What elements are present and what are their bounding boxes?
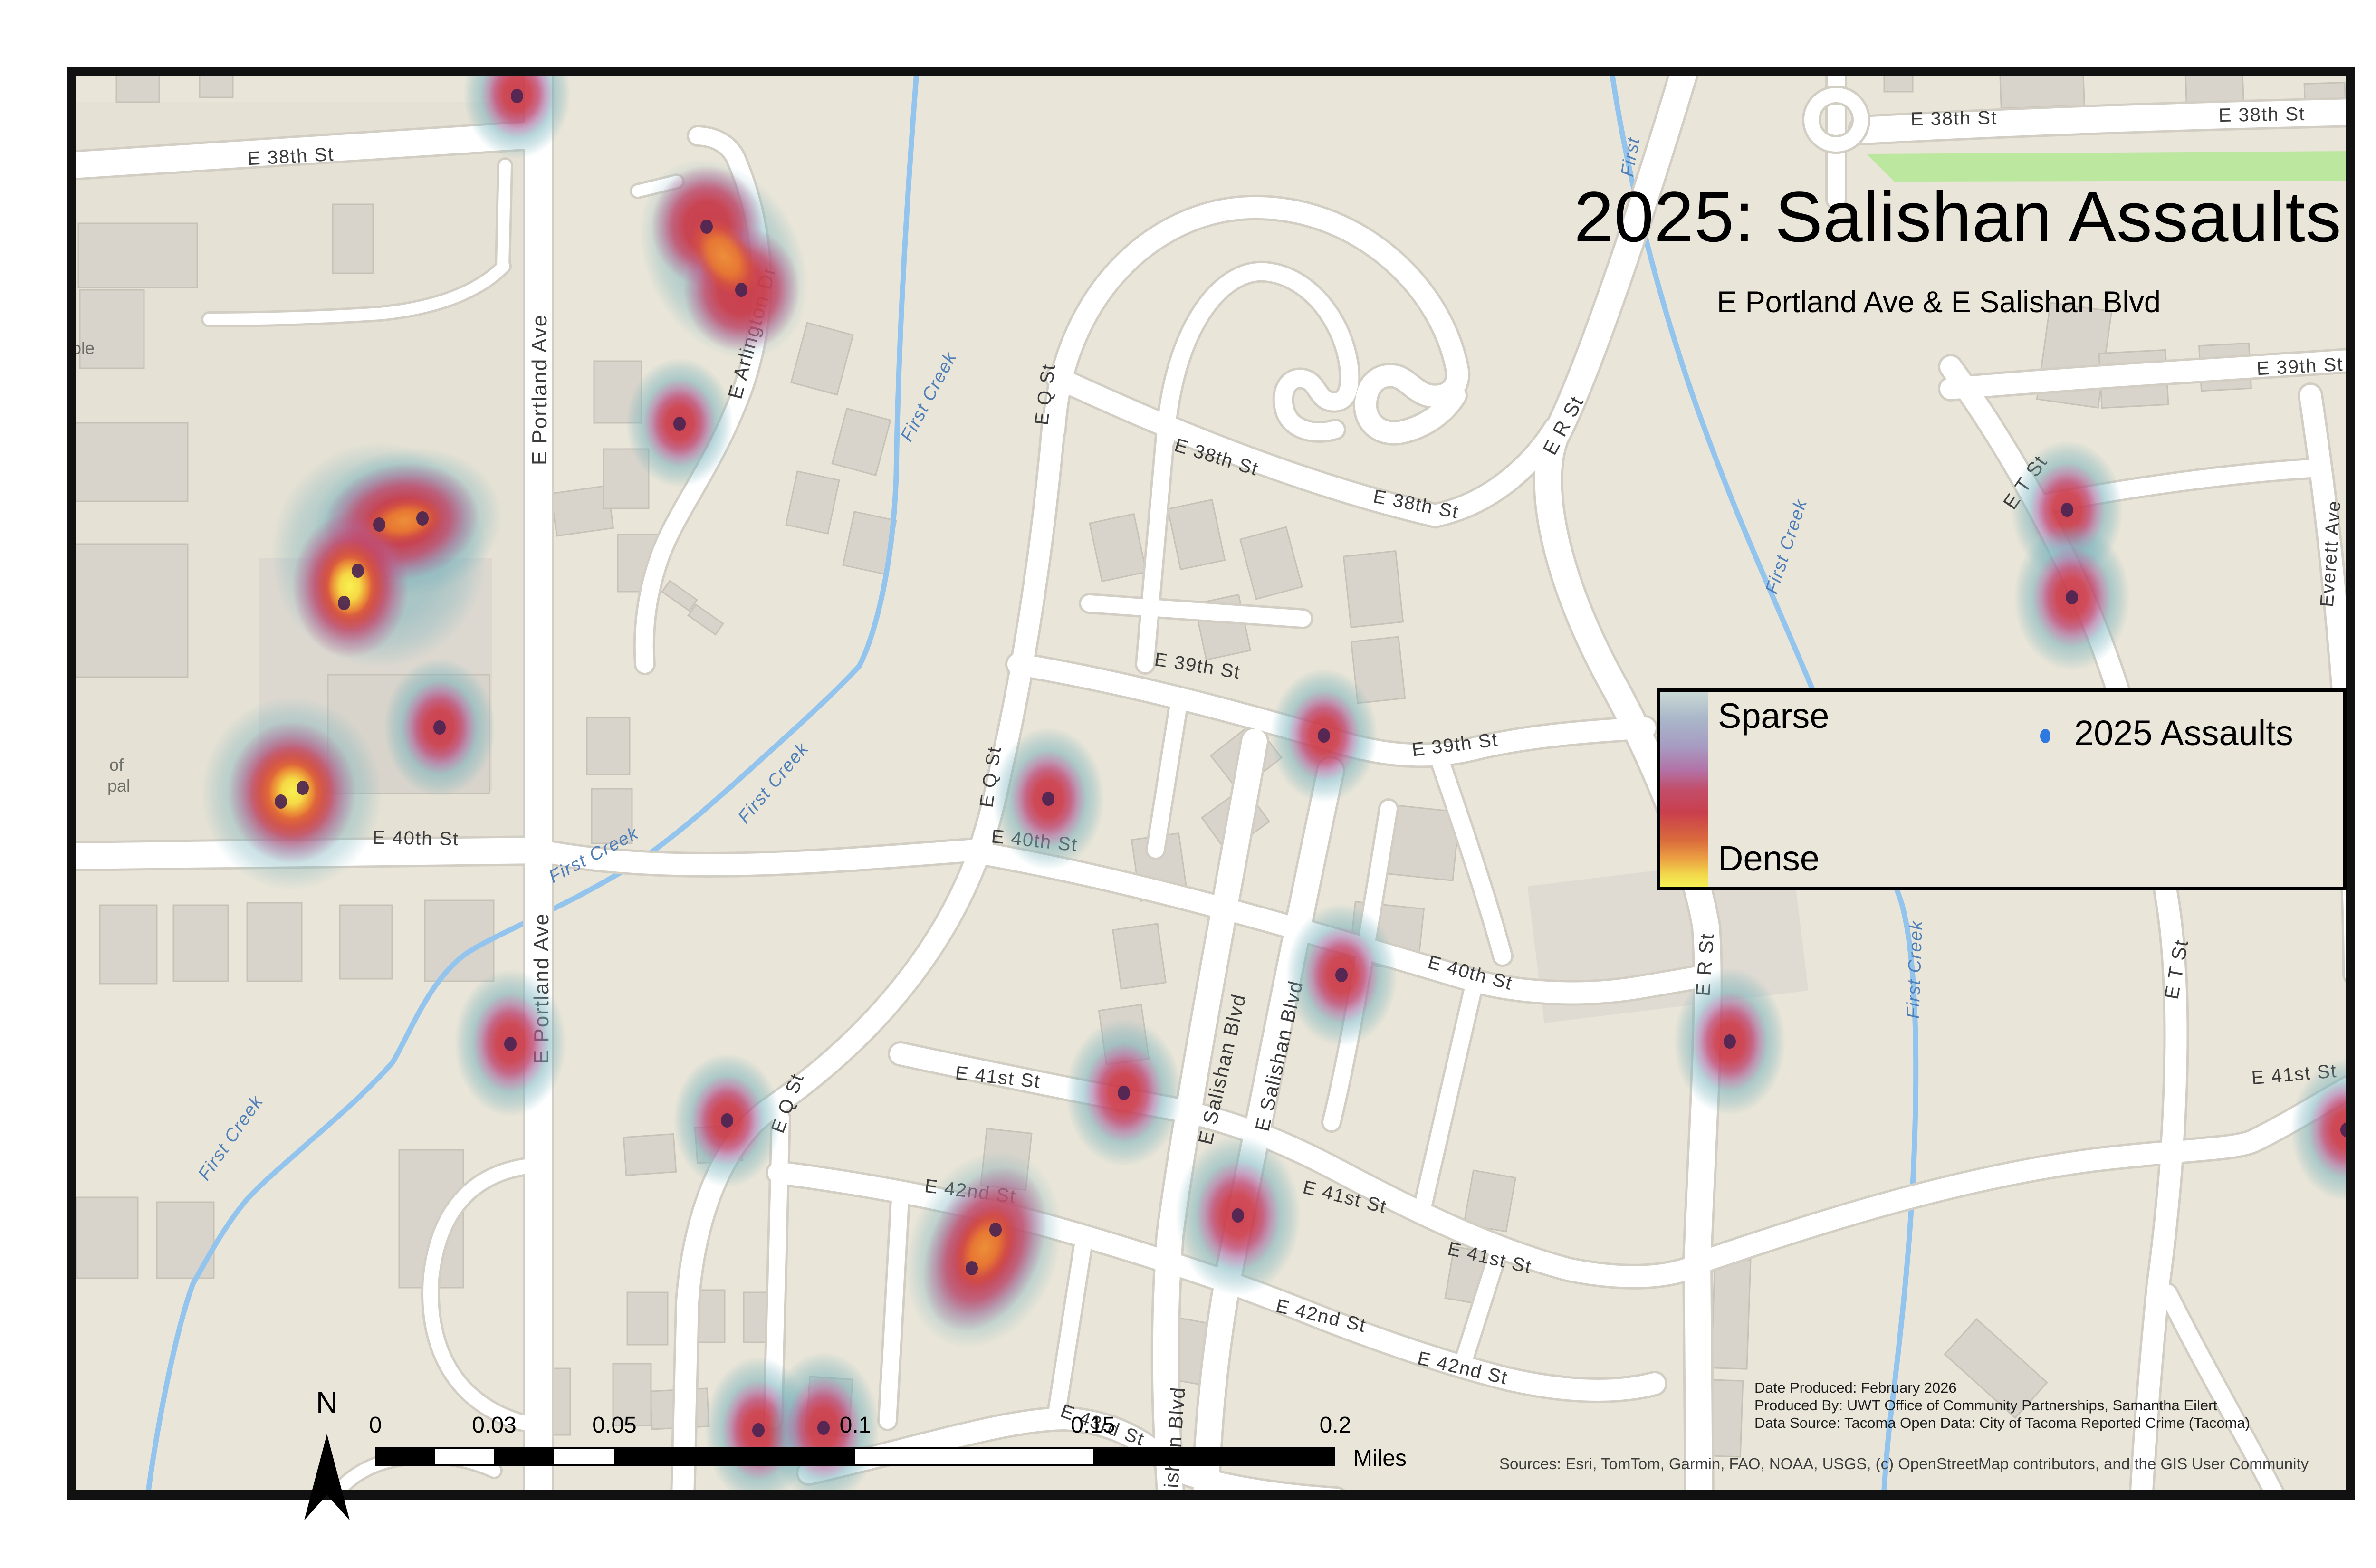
assault-point bbox=[511, 89, 523, 103]
map-title: 2025: Salishan Assaults bbox=[1544, 176, 2371, 258]
scale-tick-label: 0.1 bbox=[817, 1412, 893, 1438]
legend-density-gradient bbox=[1660, 692, 1708, 887]
basemap-sources-credit: Sources: Esri, TomTom, Garmin, FAO, NOAA… bbox=[1499, 1455, 2309, 1473]
scale-bar-segment bbox=[614, 1447, 855, 1466]
assault-point bbox=[1335, 968, 1348, 982]
credits-producer: Produced By: UWT Office of Community Par… bbox=[1754, 1396, 2250, 1414]
assault-point bbox=[1724, 1034, 1736, 1049]
assault-point bbox=[2066, 590, 2078, 604]
credits-block: Date Produced: February 2026 Produced By… bbox=[1754, 1379, 2250, 1432]
assault-point bbox=[735, 283, 747, 297]
scale-bar-segment bbox=[1093, 1447, 1335, 1466]
legend-box: Sparse Dense 2025 Assaults bbox=[1657, 688, 2347, 890]
legend-dense-label: Dense bbox=[1718, 838, 1820, 879]
scale-tick-label: 0 bbox=[337, 1412, 413, 1438]
assault-point bbox=[352, 564, 364, 578]
assault-point bbox=[989, 1223, 1002, 1237]
scale-bar-track bbox=[375, 1447, 1335, 1466]
scale-tick-label: 0.2 bbox=[1297, 1412, 1373, 1438]
assault-point bbox=[1318, 728, 1330, 743]
credits-date: Date Produced: February 2026 bbox=[1754, 1379, 2250, 1396]
assault-point bbox=[752, 1423, 765, 1437]
assault-point bbox=[433, 720, 446, 735]
assault-point bbox=[338, 596, 350, 610]
scale-bar-segment bbox=[494, 1447, 554, 1466]
scale-bar-units: Miles bbox=[1353, 1445, 1407, 1472]
assault-point bbox=[1118, 1086, 1130, 1100]
assault-point bbox=[1042, 792, 1054, 806]
assault-point bbox=[700, 220, 713, 234]
assault-point bbox=[2340, 1123, 2353, 1137]
assault-point bbox=[673, 417, 686, 431]
assault-point bbox=[1232, 1208, 1244, 1223]
assault-point bbox=[966, 1261, 978, 1275]
legend-sparse-label: Sparse bbox=[1718, 696, 1829, 736]
credits-datasource: Data Source: Tacoma Open Data: City of T… bbox=[1754, 1414, 2250, 1432]
map-layout-page: E 38th StE 38th StE 38th StE 38th StE 38… bbox=[0, 0, 2376, 1568]
assault-point bbox=[275, 794, 287, 809]
assault-point bbox=[416, 511, 429, 526]
assault-point bbox=[373, 517, 385, 532]
assault-point bbox=[297, 781, 309, 795]
scale-bar-segment bbox=[375, 1447, 435, 1466]
scale-tick-label: 0.03 bbox=[456, 1412, 532, 1438]
legend-points-label: 2025 Assaults bbox=[2074, 713, 2293, 753]
legend-point-symbol bbox=[2040, 729, 2050, 743]
assault-point bbox=[2061, 503, 2073, 517]
assault-point bbox=[721, 1113, 733, 1128]
scale-tick-label: 0.05 bbox=[576, 1412, 652, 1438]
map-subtitle: E Portland Ave & E Salishan Blvd bbox=[1544, 285, 2333, 319]
assault-point bbox=[504, 1037, 517, 1051]
scale-tick-label: 0.15 bbox=[1055, 1412, 1131, 1438]
north-arrow-glyph bbox=[298, 1428, 355, 1528]
